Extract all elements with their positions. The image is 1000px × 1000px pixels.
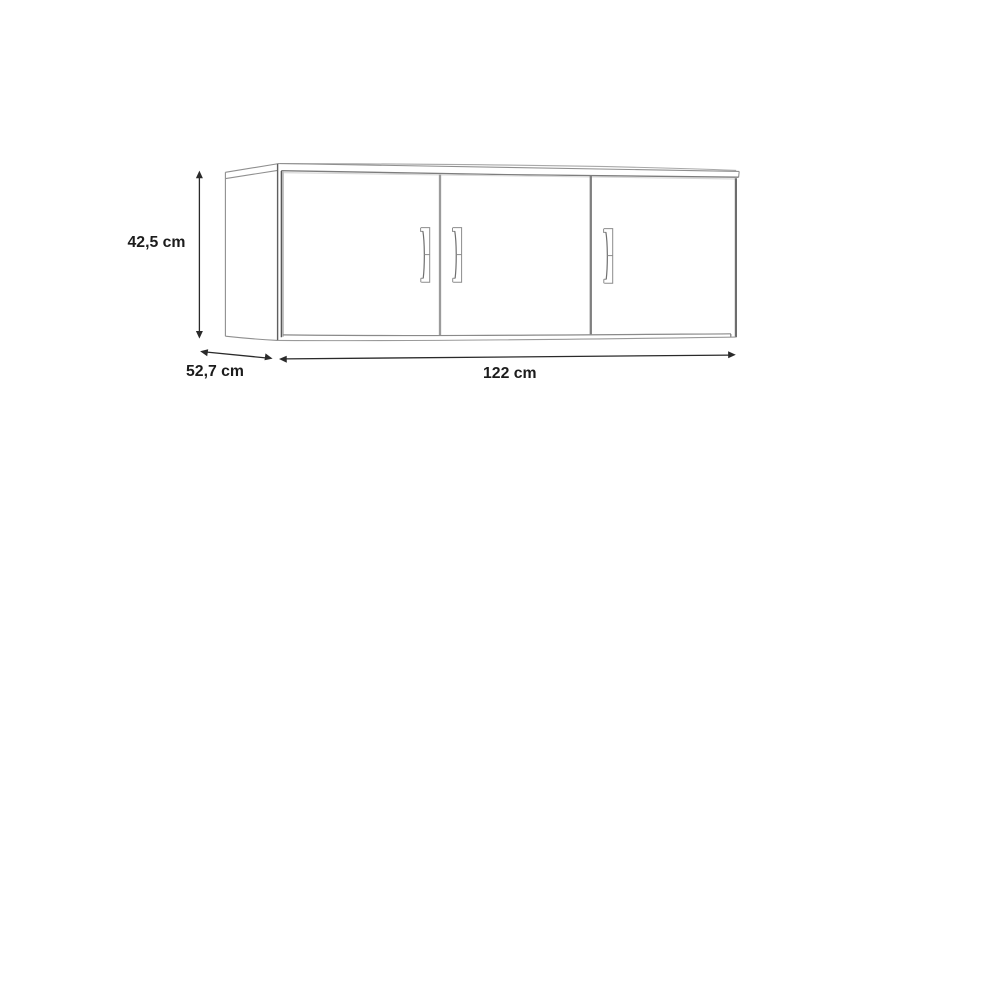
svg-text:122 cm: 122 cm — [483, 365, 537, 382]
svg-text:52,7 cm: 52,7 cm — [186, 363, 244, 380]
svg-text:42,5 cm: 42,5 cm — [128, 234, 186, 251]
